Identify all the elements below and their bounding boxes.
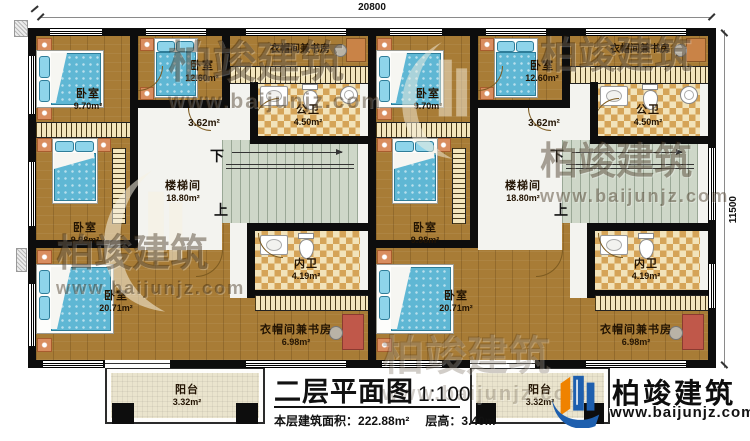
window (28, 162, 36, 226)
floor-plan-sheet: 20800 11500 (0, 0, 750, 441)
interior-wall (255, 223, 368, 231)
window (43, 360, 103, 368)
desk-icon (686, 38, 706, 62)
pillow (75, 141, 94, 152)
desk-icon (682, 314, 704, 350)
party-wall (368, 28, 376, 368)
room-label-hall: 3.62m² (188, 118, 220, 130)
toilet-icon (298, 233, 314, 259)
room-label-inner-bath: 内卫 4.19m² (632, 258, 661, 281)
window (382, 360, 442, 368)
room-label-cloak-bottom: 衣帽间兼书房 6.98m² (260, 324, 332, 347)
room-label-public-bath: 公卫 4.50m² (634, 104, 663, 127)
interior-wall (587, 290, 708, 295)
nightstand (37, 138, 52, 152)
window (50, 28, 102, 36)
interior-wall (247, 223, 255, 298)
closet-hatch (112, 148, 126, 224)
unit-left: 卧室 9.70m² 卧室 9.98m² 卧室 12.60m² 卧室 20.71m… (36, 36, 368, 360)
pillow (176, 41, 194, 52)
title-underline (274, 406, 460, 408)
stair-direction-arrow (572, 152, 682, 153)
brand-url: www.baijunjz.com (610, 404, 750, 421)
window (586, 360, 686, 368)
nightstand (480, 38, 494, 51)
nightstand (37, 338, 52, 352)
room-label-public-bath: 公卫 4.50m² (294, 104, 323, 127)
title-block: 二层平面图1:100 本层建筑面积：222.88m²层高：3.40m (274, 370, 471, 409)
nightstand (140, 38, 154, 51)
room-label-bedroom1: 卧室 9.70m² (74, 88, 103, 111)
pillow (395, 141, 414, 152)
nightstand (37, 250, 52, 264)
interior-wall (247, 290, 368, 295)
chair-icon (674, 44, 687, 57)
stair-handrail (566, 164, 694, 169)
interior-wall (590, 136, 708, 144)
window (28, 284, 36, 346)
nightstand (377, 250, 392, 264)
pillow (39, 270, 50, 294)
interior-wall (590, 82, 598, 144)
pillow (39, 56, 50, 78)
interior-wall (138, 100, 222, 108)
dimension-right-value: 11500 (728, 196, 739, 223)
dimension-top-value: 20800 (332, 2, 412, 13)
interior-wall (562, 36, 570, 108)
pillow (379, 80, 390, 102)
room-label-bedroom4: 卧室 20.71m² (99, 290, 133, 313)
window (708, 264, 716, 308)
stair-handrail (226, 164, 354, 169)
interior-wall (587, 223, 595, 298)
door-arc (536, 250, 563, 277)
stair-direction-arrow (232, 152, 342, 153)
window (246, 28, 346, 36)
room-label-cloak-top: 衣帽间兼书房 (270, 44, 330, 56)
window (146, 28, 206, 36)
room-label-stairwell: 楼梯间 18.80m² (165, 180, 201, 203)
room-label-bedroom4: 卧室 20.71m² (439, 290, 473, 313)
plan-scale: 1:100 (418, 383, 471, 406)
corridor-floor (230, 223, 247, 298)
nightstand (436, 138, 451, 152)
corner-mark (31, 5, 39, 12)
toilet-icon (638, 233, 654, 259)
pillow (157, 41, 175, 52)
building-plan: 卧室 9.70m² 卧室 9.98m² 卧室 12.60m² 卧室 20.71m… (28, 28, 716, 368)
nightstand (377, 138, 392, 152)
window (390, 28, 442, 36)
stairs-up-label: 上 (214, 200, 228, 220)
window (586, 28, 686, 36)
room-label-bedroom3: 卧室 12.60m² (525, 60, 559, 83)
brand-logo-icon (546, 370, 610, 428)
dimension-line-right (724, 30, 725, 368)
balcony-pillar (112, 403, 134, 424)
balcony-door (470, 360, 535, 368)
chair-icon (334, 44, 347, 57)
stairs-up-label: 上 (554, 200, 568, 220)
pillow (415, 141, 434, 152)
room-label-bedroom2: 卧室 9.98m² (411, 222, 440, 245)
window (708, 148, 716, 220)
room-label-bedroom1: 卧室 9.70m² (414, 88, 443, 111)
interior-wall (250, 136, 368, 144)
desk-icon (342, 314, 364, 350)
desk-icon (346, 38, 366, 62)
room-label-stairwell: 楼梯间 18.80m² (505, 180, 541, 203)
room-label-cloak-top: 衣帽间兼书房 (610, 44, 670, 56)
plan-info-line: 本层建筑面积：222.88m²层高：3.40m (274, 412, 495, 429)
nightstand (377, 338, 392, 352)
brand-logo: 柏竣建筑 www.baijunjz.com (546, 370, 746, 430)
pillow (39, 296, 50, 320)
interior-wall (470, 36, 478, 248)
wardrobe-hatch (595, 295, 708, 311)
section-mark (14, 20, 28, 37)
corridor-floor (570, 223, 587, 298)
pillow (55, 141, 74, 152)
window (246, 360, 346, 368)
pillow (39, 80, 50, 102)
stair-side-strip (358, 140, 368, 223)
room-label-hall: 3.62m² (528, 118, 560, 130)
room-label-inner-bath: 内卫 4.19m² (292, 258, 321, 281)
window (486, 28, 546, 36)
wardrobe-hatch (255, 295, 368, 311)
room-label-bedroom3: 卧室 12.60m² (185, 60, 219, 83)
closet-hatch (376, 122, 470, 138)
window (28, 56, 36, 114)
door-arc (196, 250, 223, 277)
pillow (379, 56, 390, 78)
interior-wall (222, 36, 230, 108)
pillow (379, 296, 390, 320)
stairs-down-label: 下 (210, 146, 224, 166)
nightstand (96, 138, 111, 152)
room-label-balcony: 阳台 3.32m² (173, 384, 202, 407)
interior-wall (478, 100, 562, 108)
closet-hatch (36, 122, 130, 138)
washer-icon (680, 86, 698, 104)
balcony-pillar (236, 403, 258, 424)
plan-title: 二层平面图 (274, 377, 414, 407)
washer-icon (340, 86, 358, 104)
pillow (497, 41, 515, 52)
interior-wall (250, 82, 258, 144)
closet-hatch (452, 148, 466, 224)
pillow (516, 41, 534, 52)
dimension-tick (708, 13, 715, 20)
unit-right: 卧室 9.70m² 卧室 9.98m² 卧室 12.60m² 卧室 20.71m… (376, 36, 708, 360)
room-label-cloak-bottom: 衣帽间兼书房 6.98m² (600, 324, 672, 347)
interior-wall (595, 223, 708, 231)
dimension-line-top (40, 17, 712, 18)
section-mark (16, 248, 27, 272)
stairs-down-label: 下 (550, 146, 564, 166)
nightstand (377, 106, 392, 120)
pillow (379, 270, 390, 294)
stair-side-strip (698, 140, 708, 223)
nightstand (37, 106, 52, 120)
room-label-bedroom2: 卧室 9.98m² (71, 222, 100, 245)
interior-wall (130, 36, 138, 248)
balcony-door (105, 360, 170, 368)
